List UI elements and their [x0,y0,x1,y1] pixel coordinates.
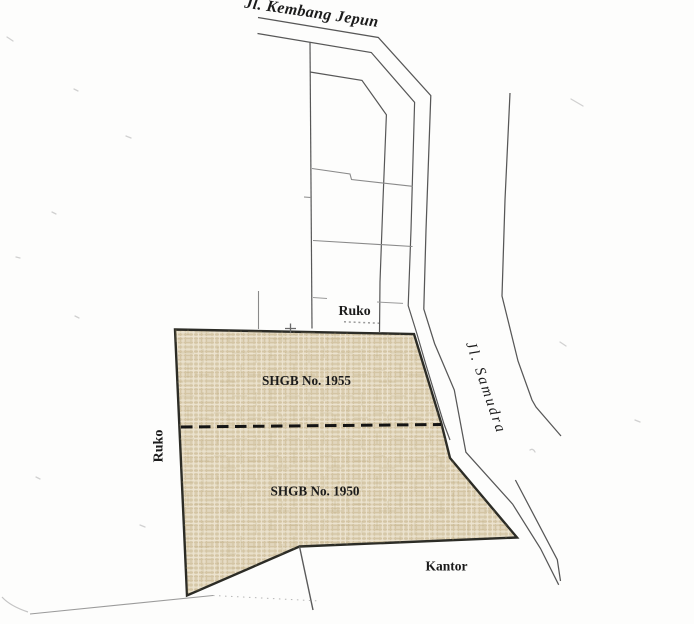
svg-text:Ruko: Ruko [339,303,371,318]
svg-text:SHGB No. 1955: SHGB No. 1955 [262,373,351,388]
svg-text:Ruko: Ruko [152,430,167,463]
svg-text:SHGB No. 1950: SHGB No. 1950 [271,484,360,499]
svg-text:Kantor: Kantor [426,559,468,574]
